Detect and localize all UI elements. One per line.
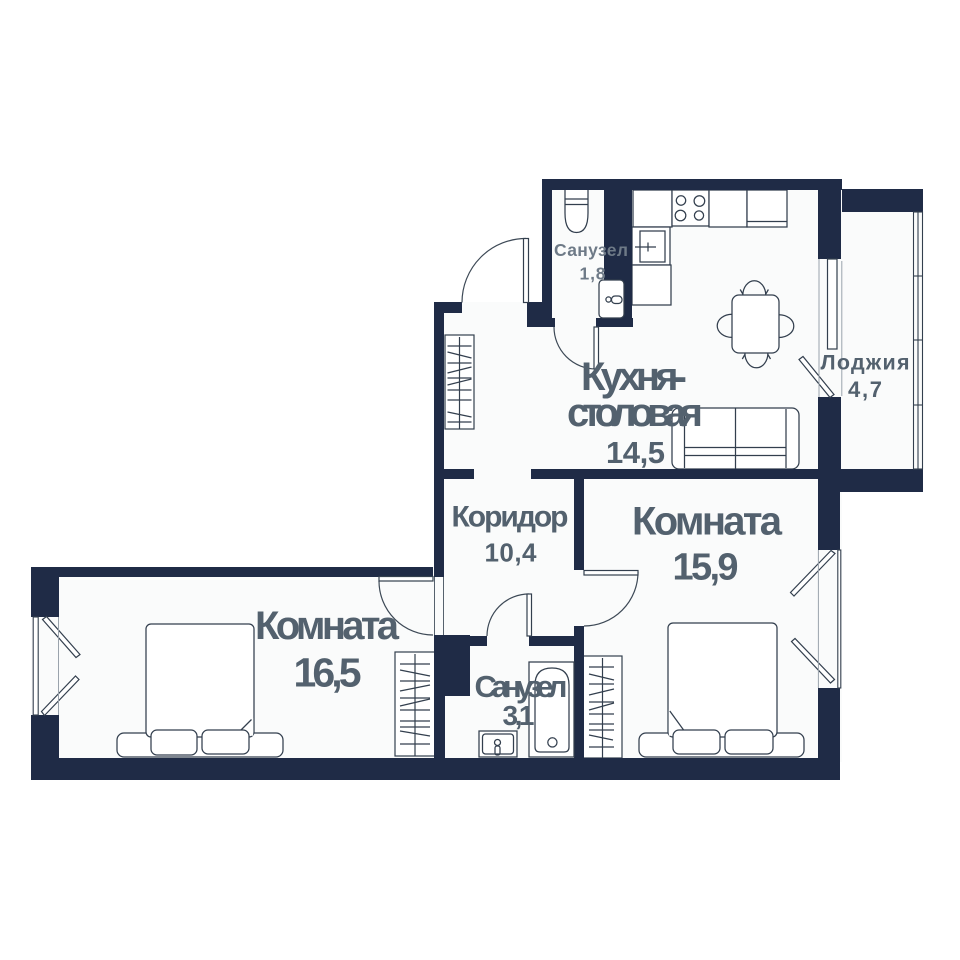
svg-text:1,8: 1,8 [580,264,606,284]
svg-text:16,5: 16,5 [294,650,362,696]
svg-text:4,7: 4,7 [848,377,882,402]
svg-text:15,9: 15,9 [673,547,739,589]
svg-text:14,5: 14,5 [606,435,665,470]
svg-text:Комната: Комната [632,500,783,544]
svg-text:столовая: столовая [567,391,703,435]
svg-text:Коридор: Коридор [452,501,569,534]
svg-text:3,1: 3,1 [503,700,535,731]
svg-text:Санузел: Санузел [554,240,628,260]
svg-text:10,4: 10,4 [485,538,538,568]
svg-text:Санузел: Санузел [475,669,568,704]
svg-text:Лоджия: Лоджия [821,351,910,375]
svg-text:Комната: Комната [255,604,400,648]
